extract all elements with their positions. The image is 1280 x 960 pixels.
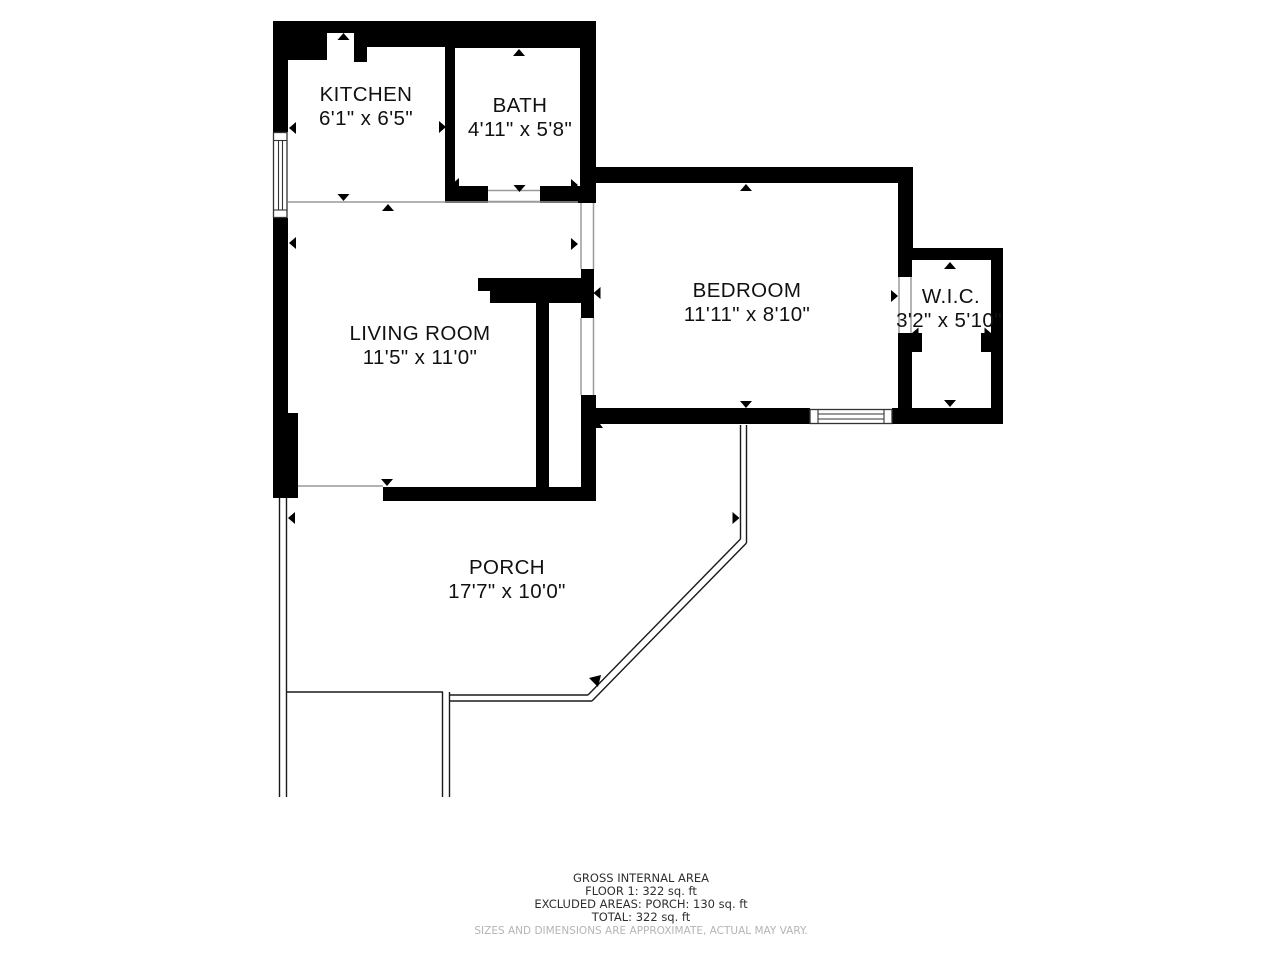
room-label-living-room: LIVING ROOM: [349, 322, 490, 345]
room-label-kitchen: KITCHEN: [320, 83, 413, 106]
window-icon: [274, 133, 288, 218]
excluded-areas-line: EXCLUDED AREAS: PORCH: 130 sq. ft: [534, 897, 748, 911]
disclaimer-line: SIZES AND DIMENSIONS ARE APPROXIMATE, AC…: [474, 925, 807, 937]
arrow-up-right-icon: [589, 675, 601, 687]
area-summary: GROSS INTERNAL AREA FLOOR 1: 322 sq. ft …: [474, 871, 807, 937]
arrow-right-icon: [571, 238, 578, 250]
room-dims-porch: 17'7" x 10'0": [448, 580, 566, 603]
arrow-down-icon: [381, 479, 393, 486]
room-dims-bath: 4'11" x 5'8": [468, 118, 572, 141]
porch-railing: [280, 425, 747, 797]
arrow-right-icon: [891, 290, 898, 302]
arrow-up-icon: [338, 33, 350, 40]
arrow-left-icon: [289, 122, 296, 134]
window-icon: [810, 410, 892, 424]
arrow-up-icon: [382, 204, 394, 211]
room-dims-living-room: 11'5" x 11'0": [363, 346, 478, 369]
arrow-left-icon: [289, 237, 296, 249]
floor-plan: KITCHEN 6'1" x 6'5" BATH 4'11" x 5'8" LI…: [0, 0, 1280, 960]
total-area-line: TOTAL: 322 sq. ft: [591, 910, 691, 924]
arrow-left-icon: [594, 287, 601, 299]
arrow-down-icon: [740, 401, 752, 408]
gross-internal-area-title: GROSS INTERNAL AREA: [573, 871, 709, 885]
room-dims-wic: 3'2" x 5'10": [896, 309, 1002, 332]
arrow-right-icon: [439, 121, 446, 133]
arrow-right-icon: [733, 512, 740, 524]
arrow-up-icon: [513, 49, 525, 56]
room-label-porch: PORCH: [469, 556, 545, 579]
arrow-up-icon: [944, 262, 956, 269]
floor-area-line: FLOOR 1: 322 sq. ft: [585, 884, 697, 898]
room-dims-bedroom: 11'11" x 8'10": [684, 303, 810, 326]
arrow-down-icon: [944, 400, 956, 407]
room-dims-kitchen: 6'1" x 6'5": [319, 107, 413, 130]
room-label-bedroom: BEDROOM: [693, 279, 802, 302]
arrow-up-icon: [740, 184, 752, 191]
arrow-left-icon: [288, 512, 295, 524]
room-label-wic: W.I.C.: [922, 285, 980, 308]
room-label-bath: BATH: [493, 94, 548, 117]
arrow-down-icon: [338, 194, 350, 201]
